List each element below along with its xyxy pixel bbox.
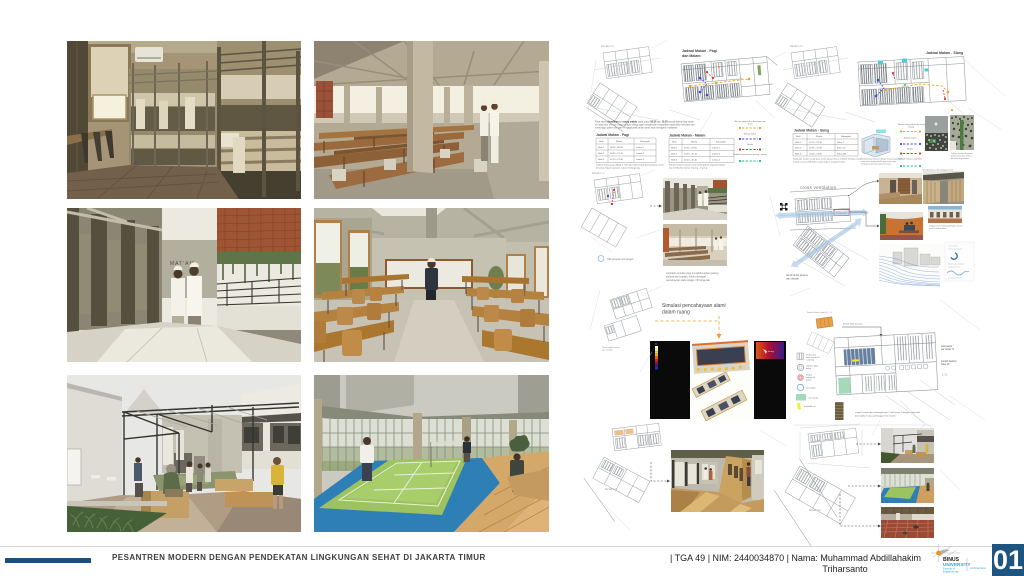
svg-text:Waktu: Waktu (691, 140, 698, 143)
svg-text:per lantai 72: per lantai 72 (941, 348, 955, 351)
svg-text:Kelas 10: Kelas 10 (837, 148, 846, 150)
svg-text:Kelompok: Kelompok (841, 136, 852, 138)
svg-text:19.30 - 19.50: 19.30 - 19.50 (684, 147, 698, 149)
svg-text:Shift 3: Shift 3 (671, 158, 678, 161)
svg-text:Shift: Shift (672, 140, 677, 143)
svg-text:Kelompok: Kelompok (640, 141, 651, 143)
svg-text:Shift 2: Shift 2 (795, 147, 802, 150)
svg-text:lux: lux (655, 344, 657, 346)
svg-text:12.35 - 12.55: 12.35 - 12.55 (809, 148, 823, 150)
svg-text:toilet 15: toilet 15 (941, 363, 950, 366)
svg-text:bersama di pesantren: bersama di pesantren (951, 157, 969, 160)
svg-text:Shift 1: Shift 1 (598, 146, 605, 149)
svg-text:Selesai makan: Selesai makan (744, 134, 756, 136)
svg-text:lantai: lantai (748, 122, 753, 125)
svg-text:Jadwal Makan - Siang: Jadwal Makan - Siang (926, 51, 963, 55)
svg-text:Lantai 3: Lantai 3 (636, 152, 645, 155)
svg-text:Kelompok: Kelompok (716, 141, 727, 143)
svg-text:pencahayaan pada tangga / lift: pencahayaan pada tangga / lift bangunan (666, 279, 711, 282)
svg-text:atas sekolah: atas sekolah (602, 349, 613, 352)
svg-text:Lantai 4: Lantai 4 (636, 158, 645, 161)
svg-text:Lantai 3: Lantai 3 (712, 152, 721, 155)
svg-text:Shift 1: Shift 1 (671, 146, 678, 149)
svg-text:Jadwal Makan - Malam: Jadwal Makan - Malam (669, 134, 705, 138)
svg-text:Waktu: Waktu (816, 135, 823, 138)
svg-text:Denah Lt 1: Denah Lt 1 (790, 44, 803, 48)
svg-text:19.55 - 20.15: 19.55 - 20.15 (684, 153, 698, 155)
svg-text:setiap 5 santri dan pembagiann: setiap 5 santri dan pembagiannya / satu … (855, 411, 921, 414)
svg-text:Jadwal Makan - Siang: Jadwal Makan - Siang (794, 129, 829, 133)
svg-text:Shift 2: Shift 2 (598, 152, 605, 155)
svg-text:dan sekolah: dan sekolah (786, 278, 800, 281)
svg-text:Jadwal Makan - Pagi: Jadwal Makan - Pagi (596, 133, 629, 137)
svg-text:lux avg: lux avg (768, 351, 774, 353)
svg-text:Jadwal Makan - Pagi: Jadwal Makan - Pagi (682, 49, 717, 53)
svg-text:Denah Lt 1: Denah Lt 1 (605, 488, 617, 491)
svg-text:denah toilet asrama: denah toilet asrama (843, 323, 863, 326)
svg-text:kamar: kamar (806, 379, 812, 382)
svg-text:Shift 2: Shift 2 (671, 152, 678, 155)
svg-text:Kelas 7: Kelas 7 (837, 142, 845, 144)
svg-text:Denah Lt 1: Denah Lt 1 (601, 44, 614, 48)
svg-text:Pada jam makan siang para sant: Pada jam makan siang para santri yang se… (793, 158, 862, 161)
svg-text:dan Malam: dan Malam (682, 54, 701, 58)
svg-text:07.20 - 07.40: 07.20 - 07.40 (610, 159, 624, 161)
svg-text:Architecture: Architecture (970, 566, 986, 570)
svg-text:Shift 1: Shift 1 (795, 141, 802, 144)
svg-text:06.30 - 06.50: 06.30 - 06.50 (610, 147, 624, 149)
svg-text:Kembali menuju ruang kelas: Kembali menuju ruang kelas (898, 158, 922, 161)
svg-text:keluar: keluar (806, 367, 812, 370)
svg-text:dalam ruang: dalam ruang (662, 310, 690, 316)
svg-text:Jadwal makan pagi dibagi 3 shi: Jadwal makan pagi dibagi 3 shift agar ti… (596, 164, 664, 167)
svg-text:untuk sirkulasi udara: untuk sirkulasi udara (929, 227, 947, 230)
svg-text:Setelah makan malam santri mel: Setelah makan malam santri melanjutkan k… (669, 164, 725, 167)
svg-text:12.10 - 12.30: 12.10 - 12.30 (809, 142, 823, 144)
svg-text:Titik tempat cuci tangan: Titik tempat cuci tangan (607, 258, 634, 261)
svg-text:dan kembali ke kamar masing -: dan kembali ke kamar masing - masing. (669, 167, 708, 170)
svg-text:dan wudhu 5 atau pembagian fo: dan wudhu 5 atau pembagian form mandi (855, 415, 896, 418)
svg-text:Shift: Shift (796, 135, 801, 138)
svg-text:cross ventilation: cross ventilation (800, 185, 837, 190)
svg-text:Shift 3: Shift 3 (795, 152, 802, 155)
svg-text:masing: masing (908, 126, 914, 128)
svg-text:menunggu giliran dengan menjag: menunggu giliran dengan menjaga jarak an… (595, 127, 678, 130)
svg-text:Shift: Shift (599, 140, 604, 143)
svg-text:Shift 3: Shift 3 (598, 158, 605, 161)
svg-text:menjaga jarak saat makan bersa: menjaga jarak saat makan bersama. (861, 163, 892, 166)
svg-text:1 : 5: 1 : 5 (942, 374, 947, 377)
svg-text:cuci tangan: cuci tangan (806, 387, 816, 390)
svg-text:Engineering: Engineering (943, 570, 958, 574)
svg-text:Denah Lt 2: Denah Lt 2 (809, 509, 821, 512)
svg-text:Lantai 4: Lantai 4 (712, 158, 721, 161)
svg-text:Wudhu: Wudhu (747, 144, 753, 146)
svg-text:Waktu: Waktu (616, 140, 623, 143)
svg-text:Denah Lt 1: Denah Lt 1 (592, 171, 605, 175)
svg-text:20.20 - 20.40: 20.20 - 20.40 (684, 159, 698, 161)
svg-text:06.55 - 07.15: 06.55 - 07.15 (610, 153, 624, 155)
svg-text:makan sesuai shift kelas untuk: makan sesuai shift kelas untuk makan sia… (793, 161, 846, 164)
svg-text:13.00 - 13.20: 13.00 - 13.20 (809, 153, 823, 155)
svg-text:Kelas 8B: Kelas 8B (837, 153, 846, 155)
svg-text:Lantai 2: Lantai 2 (712, 146, 721, 149)
svg-text:washtafel cuci: washtafel cuci (804, 405, 816, 408)
svg-text:Denah lokasi toilet lt 2 -: Denah lokasi toilet lt 2 - 4 (807, 311, 832, 314)
svg-text:Simulasi pencahayaan alami: Simulasi pencahayaan alami (662, 303, 726, 309)
svg-text:area wudhu: area wudhu (809, 397, 819, 400)
svg-text:Lantai 2: Lantai 2 (636, 146, 645, 149)
svg-text:Selesai makan: Selesai makan (904, 138, 916, 140)
svg-text:di ruang makan saat jam makan: di ruang makan saat jam makan berlangsun… (596, 167, 641, 170)
svg-text:1 m(neta): 1 m(neta) (806, 359, 814, 362)
svg-text:Kembali menuju kamar masing -: Kembali menuju kamar masing - masing (733, 153, 767, 156)
svg-text:Wudhu: Wudhu (907, 149, 913, 151)
